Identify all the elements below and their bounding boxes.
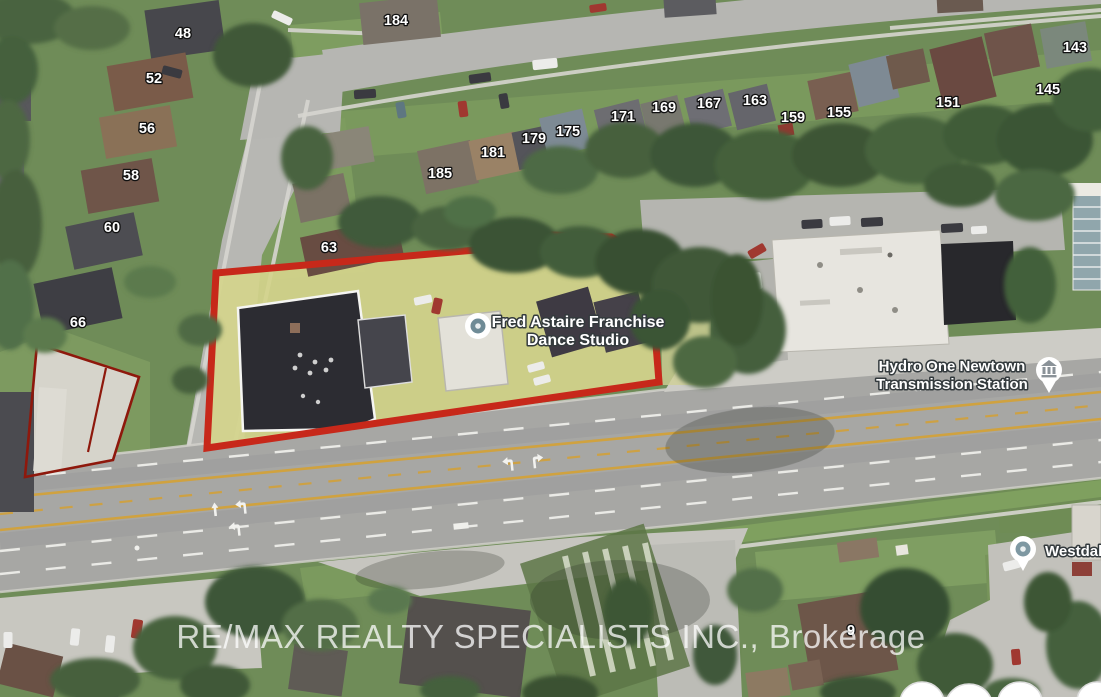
house-number-184: 184: [384, 13, 408, 29]
house-number-56: 56: [139, 121, 155, 137]
main-building: [238, 291, 375, 431]
house-number-179: 179: [522, 131, 546, 147]
poi-label-fred-astaire-1[interactable]: Fred Astaire Franchise: [492, 314, 665, 331]
house-number-52: 52: [146, 71, 162, 87]
house-number-155: 155: [827, 105, 851, 121]
poi-label-westdale[interactable]: Westdale: [1045, 543, 1101, 560]
house-number-145: 145: [1036, 82, 1060, 98]
poi-label-fred-astaire-2[interactable]: Dance Studio: [527, 332, 629, 349]
house-number-143: 143: [1063, 40, 1087, 56]
house-number-169: 169: [652, 100, 676, 116]
house-number-66: 66: [70, 315, 86, 331]
poi-pin-fred-astaire[interactable]: [465, 313, 491, 339]
house-number-159: 159: [781, 110, 805, 126]
house-number-167: 167: [697, 96, 721, 112]
house-number-151: 151: [936, 95, 960, 111]
poi-label-hydro-one-2[interactable]: Transmission Station: [876, 376, 1028, 393]
house-number-181: 181: [481, 145, 505, 161]
satellite-map-canvas[interactable]: Fred Astaire Franchise Dance Studio Hydr…: [0, 0, 1101, 697]
house-number-171: 171: [611, 109, 635, 125]
house-number-63: 63: [321, 240, 337, 256]
poi-label-hydro-one-1[interactable]: Hydro One Newtown: [879, 358, 1026, 375]
house-number-60: 60: [104, 220, 120, 236]
brokerage-watermark: RE/MAX REALTY SPECIALISTS INC., Brokerag…: [176, 618, 925, 655]
house-number-163: 163: [743, 93, 767, 109]
house-number-175: 175: [556, 124, 580, 140]
house-number-48: 48: [175, 26, 191, 42]
house-number-185: 185: [428, 166, 452, 182]
house-number-58: 58: [123, 168, 139, 184]
